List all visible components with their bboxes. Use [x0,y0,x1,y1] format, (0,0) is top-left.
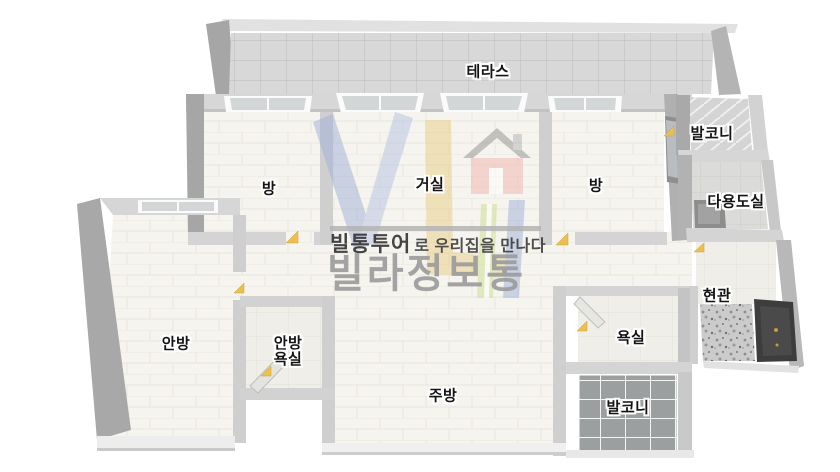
room-label-master: 안방 [162,333,191,354]
door-knob-icon [774,328,778,332]
window-room-left [224,96,312,112]
window-living-1 [336,93,424,113]
floorplan-page: 빌통투어로 우리집을 만나다 빌라정보통 테라스 발코니 다용도실 방 거실 방… [0,0,840,472]
upper-wall-band [186,93,692,113]
window-room-right [548,96,622,112]
room-label-room-right: 방 [589,175,603,196]
floorplan-canvas [0,0,840,472]
room-label-living: 거실 [416,174,445,195]
room-label-bath: 욕실 [617,327,646,348]
room-label-master-bath-line1: 안방 [274,336,303,352]
kitchen-floor [335,303,553,443]
room-label-master-bath-line2: 욕실 [274,352,303,368]
room-label-balcony-bottom: 발코니 [607,397,650,418]
terrace-section [206,19,741,96]
room-label-master-bath: 안방 욕실 [274,336,303,368]
room-label-terrace: 테라스 [467,61,510,82]
window-master [138,200,218,213]
entrance-mat [700,304,755,361]
room-label-kitchen: 주방 [429,385,458,406]
room-label-balcony-top: 발코니 [691,123,734,144]
room-label-entrance: 현관 [703,285,732,306]
entrance-door [754,299,797,362]
room-label-utility: 다용도실 [707,191,764,212]
room-label-room-left: 방 [262,178,276,199]
room-right-floor [552,112,664,233]
window-living-2 [440,93,528,113]
